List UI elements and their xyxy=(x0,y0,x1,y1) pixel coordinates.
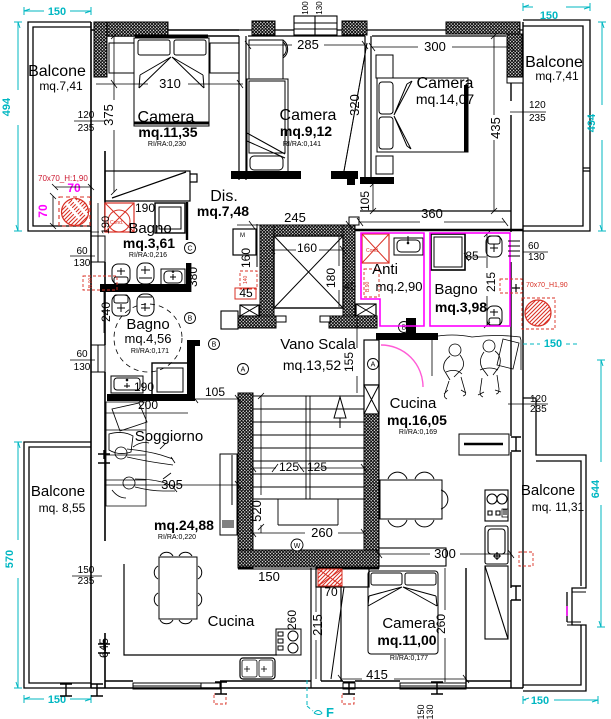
svg-text:235: 235 xyxy=(78,123,95,134)
svg-text:RI/RA:0,171: RI/RA:0,171 xyxy=(131,348,169,355)
svg-text:Camera: Camera xyxy=(417,75,474,92)
svg-text:150: 150 xyxy=(48,6,66,18)
svg-text:310: 310 xyxy=(159,76,181,91)
svg-text:415: 415 xyxy=(366,667,388,682)
svg-text:435: 435 xyxy=(488,117,503,139)
svg-text:RI/RA:0,177: RI/RA:0,177 xyxy=(390,655,428,662)
svg-text:mq.14,07: mq.14,07 xyxy=(416,91,475,107)
svg-text:60: 60 xyxy=(528,241,540,252)
svg-text:mq.7,48: mq.7,48 xyxy=(197,203,249,219)
svg-text:120: 120 xyxy=(529,100,546,111)
svg-text:B: B xyxy=(188,316,193,323)
svg-text:130: 130 xyxy=(74,362,91,373)
svg-text:305: 305 xyxy=(161,477,183,492)
svg-text:mq.3,98: mq.3,98 xyxy=(435,299,487,315)
svg-text:100: 100 xyxy=(301,1,310,15)
svg-text:215: 215 xyxy=(484,272,498,292)
svg-text:105: 105 xyxy=(205,385,225,399)
svg-text:235: 235 xyxy=(78,576,95,587)
svg-text:360: 360 xyxy=(421,206,443,221)
svg-text:RI/RA:0,220: RI/RA:0,220 xyxy=(158,534,196,541)
svg-text:70: 70 xyxy=(67,181,81,195)
svg-text:F: F xyxy=(326,705,334,719)
svg-text:Cucina: Cucina xyxy=(390,395,437,412)
svg-text:125: 125 xyxy=(279,460,299,474)
svg-text:125: 125 xyxy=(307,460,327,474)
svg-text:130: 130 xyxy=(528,252,545,263)
svg-text:Cond.: Cond. xyxy=(110,220,123,226)
svg-text:105: 105 xyxy=(358,191,372,211)
svg-text:260: 260 xyxy=(434,614,448,634)
svg-text:260: 260 xyxy=(311,525,333,540)
svg-text:160: 160 xyxy=(297,241,317,255)
svg-text:mq.9,12: mq.9,12 xyxy=(280,123,332,139)
svg-text:190: 190 xyxy=(134,380,154,394)
svg-text:mq.24,88: mq.24,88 xyxy=(154,517,214,533)
svg-text:380: 380 xyxy=(186,267,200,287)
svg-text:Vano Scala: Vano Scala xyxy=(280,336,356,353)
svg-text:Balcone: Balcone xyxy=(31,483,85,500)
svg-text:RI/RA:0,216: RI/RA:0,216 xyxy=(129,252,167,259)
svg-text:85: 85 xyxy=(465,249,479,263)
svg-text:40: 40 xyxy=(344,281,356,293)
svg-text:A: A xyxy=(241,367,246,374)
svg-text:mq.7,41: mq.7,41 xyxy=(535,69,579,83)
svg-text:494: 494 xyxy=(586,113,598,132)
svg-text:mq. 8,55: mq. 8,55 xyxy=(39,501,86,515)
svg-text:235: 235 xyxy=(530,404,547,415)
svg-text:70x70_H:1,90: 70x70_H:1,90 xyxy=(38,174,88,183)
svg-text:320: 320 xyxy=(347,94,362,116)
svg-text:130: 130 xyxy=(425,704,435,719)
svg-text:70: 70 xyxy=(324,585,338,599)
svg-text:C: C xyxy=(187,246,192,253)
svg-text:150: 150 xyxy=(544,338,562,350)
svg-text:190: 190 xyxy=(135,201,155,215)
svg-text:RI/RA:0,141: RI/RA:0,141 xyxy=(283,141,321,148)
svg-text:A: A xyxy=(371,362,376,369)
svg-text:120: 120 xyxy=(78,110,95,121)
svg-text:mq. 11,31: mq. 11,31 xyxy=(532,500,585,514)
svg-text:150: 150 xyxy=(258,569,280,584)
svg-text:Camera: Camera xyxy=(382,615,436,632)
svg-text:mq.13,52: mq.13,52 xyxy=(283,357,342,373)
svg-text:130: 130 xyxy=(315,1,324,15)
svg-text:Bagno: Bagno xyxy=(434,281,477,298)
svg-text:150: 150 xyxy=(531,695,549,707)
svg-text:215: 215 xyxy=(310,614,325,636)
svg-text:140: 140 xyxy=(243,275,249,284)
svg-text:190: 190 xyxy=(100,216,112,234)
svg-text:mq.7,41: mq.7,41 xyxy=(39,79,83,93)
svg-text:300: 300 xyxy=(434,546,456,561)
svg-text:160: 160 xyxy=(239,248,253,268)
svg-text:285: 285 xyxy=(297,37,319,52)
svg-text:570: 570 xyxy=(4,550,16,568)
svg-text:mq.2,90: mq.2,90 xyxy=(376,279,423,294)
svg-text:60: 60 xyxy=(76,349,88,360)
svg-text:mq.11,00: mq.11,00 xyxy=(377,632,436,648)
svg-text:W: W xyxy=(294,543,301,550)
svg-text:60: 60 xyxy=(76,246,88,257)
svg-text:Balcone: Balcone xyxy=(28,63,86,80)
svg-text:180: 180 xyxy=(324,268,338,288)
svg-text:RI/RA:0,169: RI/RA:0,169 xyxy=(399,429,437,436)
svg-text:245: 245 xyxy=(284,210,306,225)
svg-text:520: 520 xyxy=(249,500,264,522)
svg-text:Anti: Anti xyxy=(372,261,398,278)
svg-text:Cucina: Cucina xyxy=(208,613,255,630)
svg-text:B: B xyxy=(212,342,217,349)
svg-text:644: 644 xyxy=(590,479,602,498)
svg-text:B.90: B.90 xyxy=(365,281,371,292)
svg-text:494: 494 xyxy=(1,97,13,116)
svg-text:130: 130 xyxy=(74,258,91,269)
svg-text:mq.3,61: mq.3,61 xyxy=(123,235,175,251)
svg-text:375: 375 xyxy=(101,104,116,126)
svg-text:235: 235 xyxy=(529,113,546,124)
svg-text:70x70_H1,90: 70x70_H1,90 xyxy=(526,282,568,289)
svg-text:155: 155 xyxy=(342,352,356,372)
svg-text:150: 150 xyxy=(78,565,95,576)
svg-text:mq.11,35: mq.11,35 xyxy=(138,124,197,140)
svg-text:300: 300 xyxy=(424,39,446,54)
svg-text:200: 200 xyxy=(138,398,158,412)
svg-text:70: 70 xyxy=(36,204,50,218)
svg-text:150: 150 xyxy=(540,10,558,22)
svg-text:M: M xyxy=(240,233,245,239)
svg-text:B.00: B.00 xyxy=(88,277,94,288)
svg-text:Camera: Camera xyxy=(280,107,337,124)
svg-text:Balcone: Balcone xyxy=(521,482,575,499)
svg-text:Cond.: Cond. xyxy=(366,248,379,254)
svg-text:mq.16,05: mq.16,05 xyxy=(387,412,447,428)
svg-text:mq.4,56: mq.4,56 xyxy=(125,331,172,346)
svg-text:240: 240 xyxy=(99,302,113,322)
svg-text:Soggiorno: Soggiorno xyxy=(135,428,203,445)
svg-text:RI/RA:0,230: RI/RA:0,230 xyxy=(148,141,186,148)
svg-text:260: 260 xyxy=(285,610,299,630)
